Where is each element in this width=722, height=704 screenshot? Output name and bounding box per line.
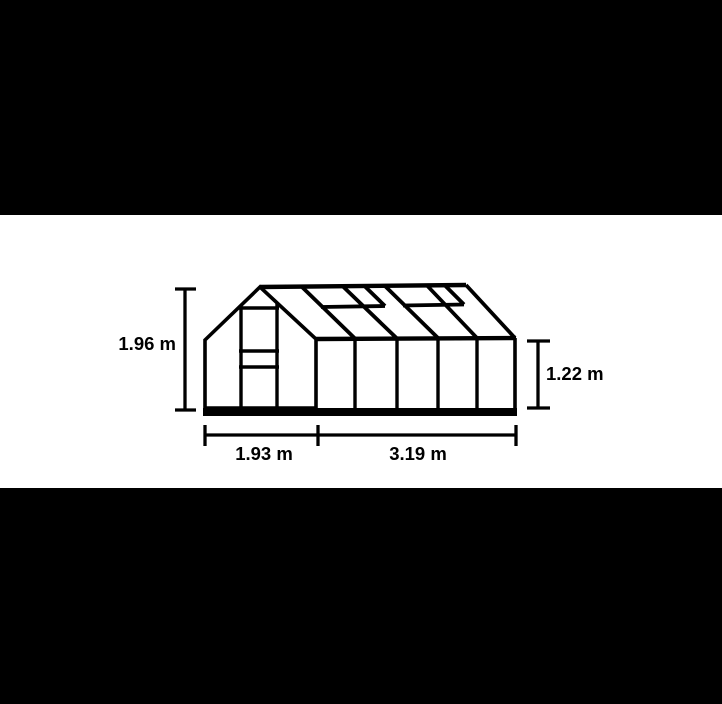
eave-line xyxy=(316,338,516,339)
diagram-canvas: 1.96 m 1.22 m 1.93 m 3.19 m xyxy=(0,215,722,488)
greenhouse-dimension-drawing: 1.96 m 1.22 m 1.93 m 3.19 m xyxy=(0,215,722,488)
side-length-label: 3.19 m xyxy=(389,443,447,464)
roof xyxy=(260,285,515,339)
ridge-line xyxy=(260,285,466,287)
dimension-bottom-widths: 1.93 m 3.19 m xyxy=(205,425,516,464)
base-bar xyxy=(203,408,517,416)
greenhouse-drawing xyxy=(203,285,517,416)
roof-vent xyxy=(403,286,464,306)
letterbox-bottom xyxy=(0,488,722,704)
wall-height-label: 1.22 m xyxy=(546,363,604,384)
gable-width-label: 1.93 m xyxy=(235,443,293,464)
dimension-wall-height: 1.22 m xyxy=(527,341,604,408)
gable-end-outline xyxy=(205,287,316,408)
roof-vent-side-edge xyxy=(365,287,385,307)
letterbox-top xyxy=(0,0,722,215)
roof-vent-bottom-bar xyxy=(321,306,385,307)
roof-vent-bottom-bar xyxy=(403,305,464,306)
gable-end xyxy=(205,287,316,408)
roof-rafter xyxy=(302,287,355,339)
letterboxed-viewport: 1.96 m 1.22 m 1.93 m 3.19 m xyxy=(0,0,722,704)
dimension-total-height: 1.96 m xyxy=(118,289,196,410)
roof-rafter xyxy=(385,286,438,338)
side-wall xyxy=(316,338,516,408)
gable-door xyxy=(239,303,279,408)
roof-end-edge xyxy=(466,285,515,338)
roof-vent-side-edge xyxy=(445,286,464,305)
total-height-label: 1.96 m xyxy=(118,333,176,354)
roof-rafter xyxy=(343,287,397,339)
